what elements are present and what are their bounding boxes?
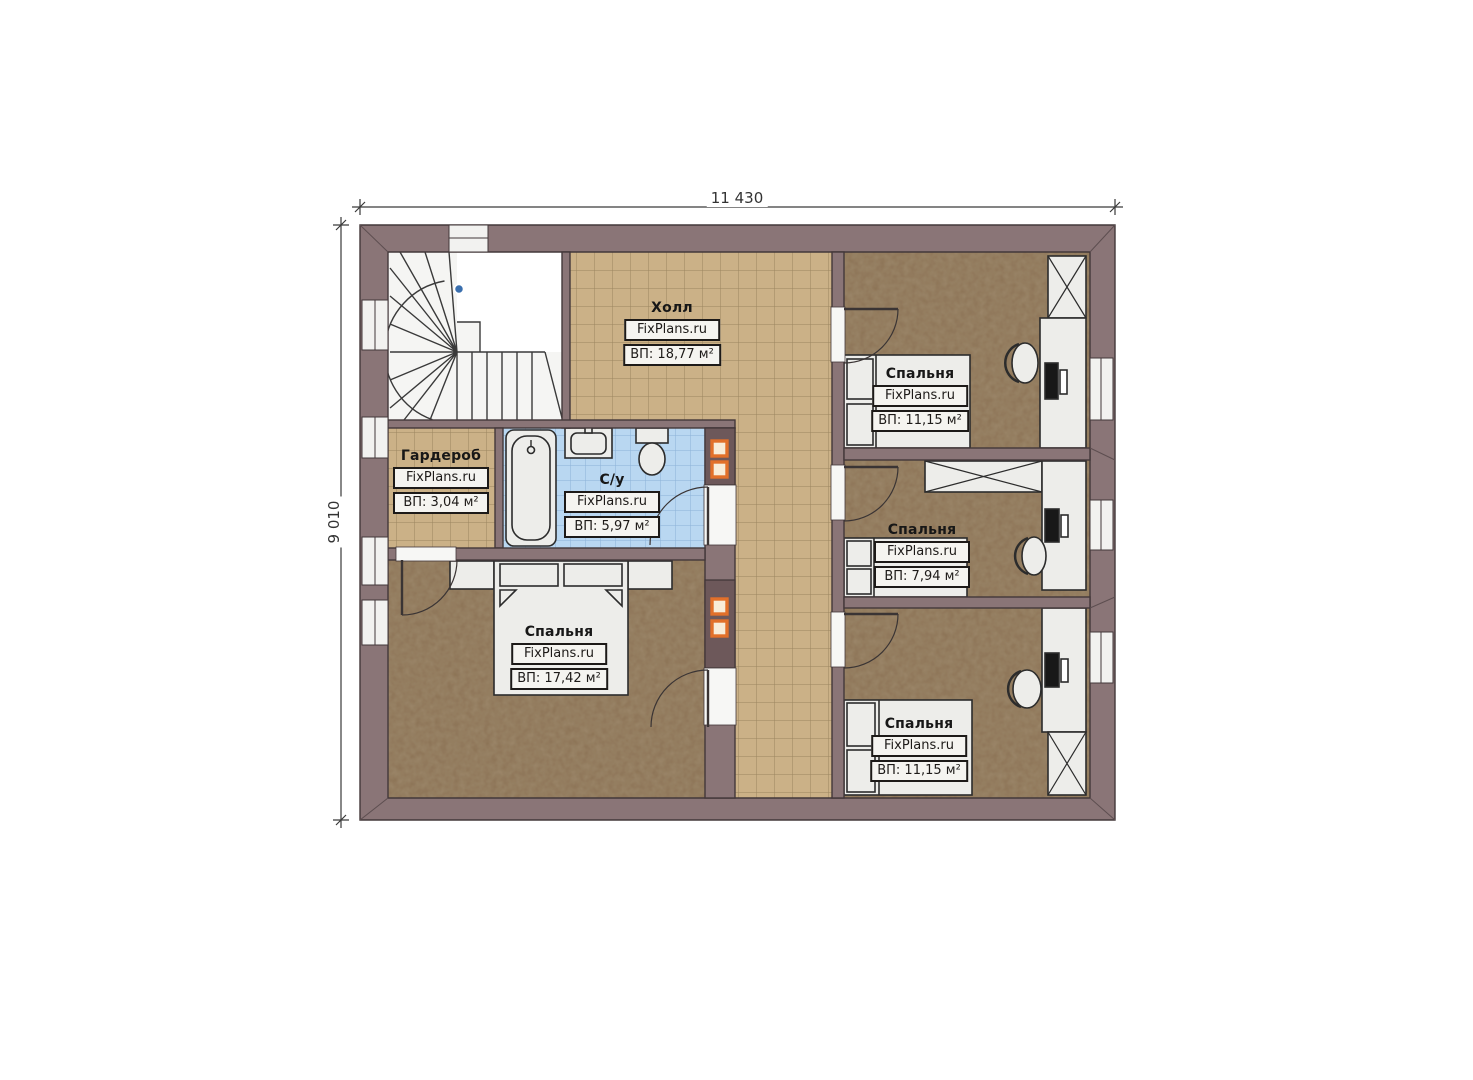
wall-under-stair [388,420,735,428]
desk-top [1040,318,1086,448]
wall-wardrobe-bath [495,428,503,548]
door-opening-wardrobe [396,547,456,561]
door-opening-bedroom-top [831,307,845,362]
pillow [847,359,873,399]
window-right-1 [1090,358,1113,420]
stair-marker-dot [455,285,464,294]
toilet [636,428,668,475]
window-left-1 [362,300,388,350]
dimension-width [352,199,1123,215]
chair-bottom [1008,670,1041,708]
nightstand-right [628,561,672,589]
wall-middle-bottom [844,597,1090,608]
pillow [847,750,875,792]
wall-top-middle [844,448,1090,460]
window-left-4 [362,600,388,645]
door-opening-bedroom-bottom [831,612,845,667]
pillow [847,404,873,445]
sink [565,425,612,458]
vent-icon [712,599,727,614]
pillow [500,564,558,586]
dimension-height [333,217,349,828]
desk-middle [1042,461,1086,590]
floor-plan-page: 11 430 9 010 Холл FixPlans.ru ВП: 18,77 … [0,0,1473,1080]
wardrobe-cabinet-bottom [1048,732,1086,795]
window-left-2 [362,417,388,458]
vent-icon [712,462,727,477]
pillow [847,541,871,566]
door-opening-bedroom-middle [831,465,845,520]
stair-landing-2 [480,252,562,352]
wardrobe-floor [388,428,495,548]
floor-plan-drawing [0,0,1473,1080]
vent-icon [712,441,727,456]
window-left-3 [362,537,388,585]
bed-top-bedroom [844,355,970,448]
wardrobe-cabinet-top [1048,256,1086,318]
vent-icon [712,621,727,636]
pillow [847,703,875,746]
bed-middle-bedroom [844,538,967,597]
window-right-2 [1090,500,1113,550]
wall-stair-hall [562,252,570,428]
wardrobe-cabinet-middle [925,461,1042,492]
window-right-3 [1090,632,1113,683]
desk-bottom [1042,608,1086,732]
bathtub [506,430,556,546]
pillow [847,569,871,594]
bed-bottom-bedroom [844,700,972,795]
window-top-1 [449,225,488,252]
pillow [564,564,622,586]
